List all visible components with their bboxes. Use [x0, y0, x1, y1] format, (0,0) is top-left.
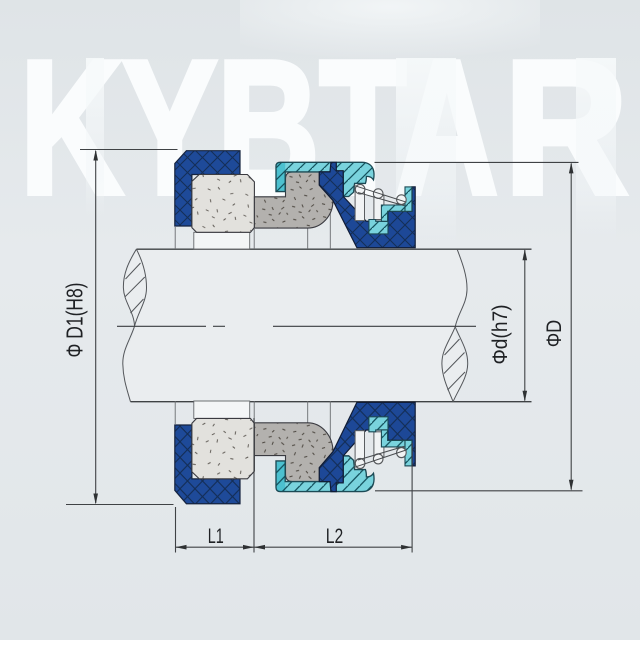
svg-text:L1: L1	[208, 525, 224, 548]
svg-text:Φ D1(H8): Φ D1(H8)	[62, 283, 88, 358]
svg-text:Φd(h7): Φd(h7)	[489, 305, 512, 365]
svg-text:ΦD: ΦD	[543, 320, 566, 348]
svg-text:L2: L2	[326, 525, 344, 548]
